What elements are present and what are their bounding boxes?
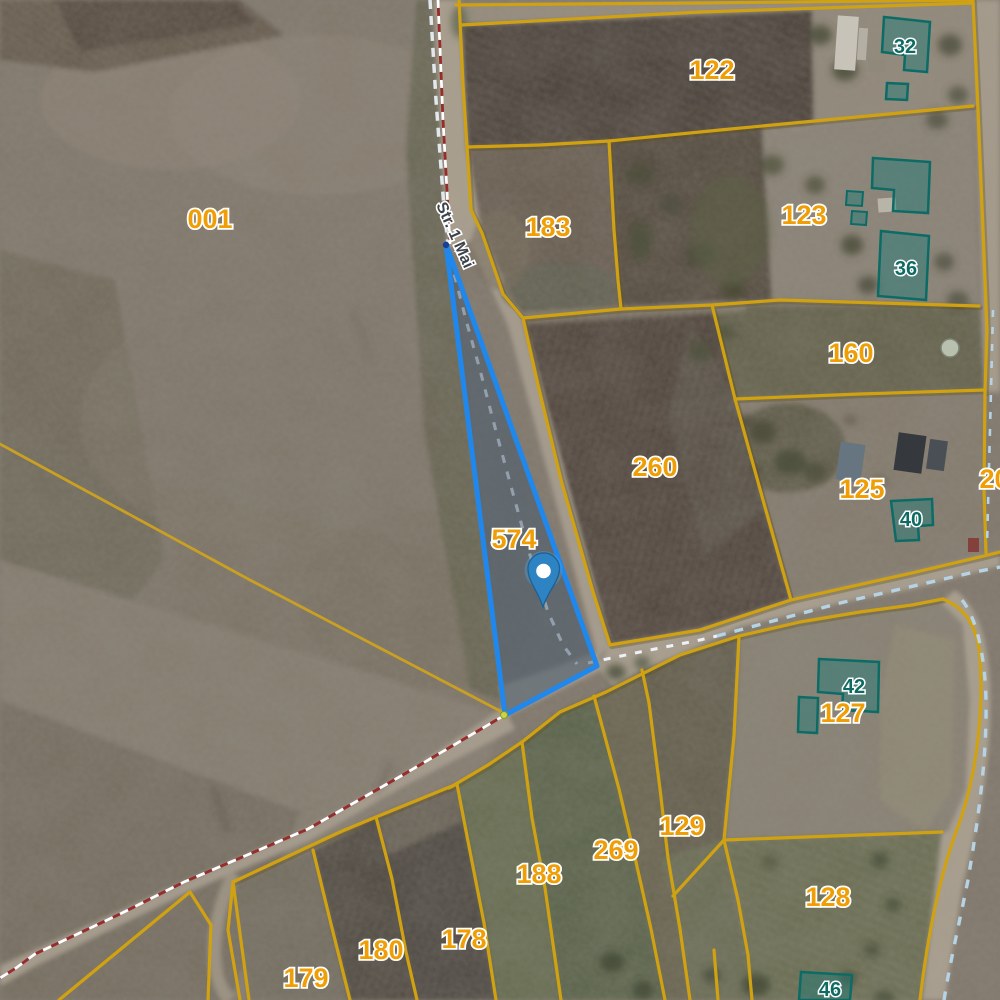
svg-text:129: 129 — [659, 811, 704, 841]
svg-text:188: 188 — [516, 859, 561, 889]
svg-text:42: 42 — [843, 676, 865, 698]
svg-text:128: 128 — [805, 882, 850, 912]
svg-text:32: 32 — [894, 36, 916, 58]
svg-text:122: 122 — [689, 55, 734, 85]
svg-text:40: 40 — [900, 509, 922, 531]
svg-text:160: 160 — [828, 338, 873, 368]
svg-text:001: 001 — [187, 204, 232, 234]
svg-text:180: 180 — [358, 935, 403, 965]
svg-text:205: 205 — [979, 464, 1000, 494]
svg-text:123: 123 — [781, 200, 826, 230]
svg-text:127: 127 — [820, 698, 865, 728]
svg-text:36: 36 — [895, 258, 917, 280]
svg-text:260: 260 — [632, 452, 677, 482]
svg-text:178: 178 — [441, 924, 486, 954]
svg-text:574: 574 — [491, 524, 536, 554]
svg-text:179: 179 — [283, 963, 328, 993]
svg-text:183: 183 — [525, 212, 570, 242]
svg-text:125: 125 — [839, 474, 884, 504]
svg-text:46: 46 — [819, 979, 841, 1000]
svg-text:269: 269 — [593, 835, 638, 865]
